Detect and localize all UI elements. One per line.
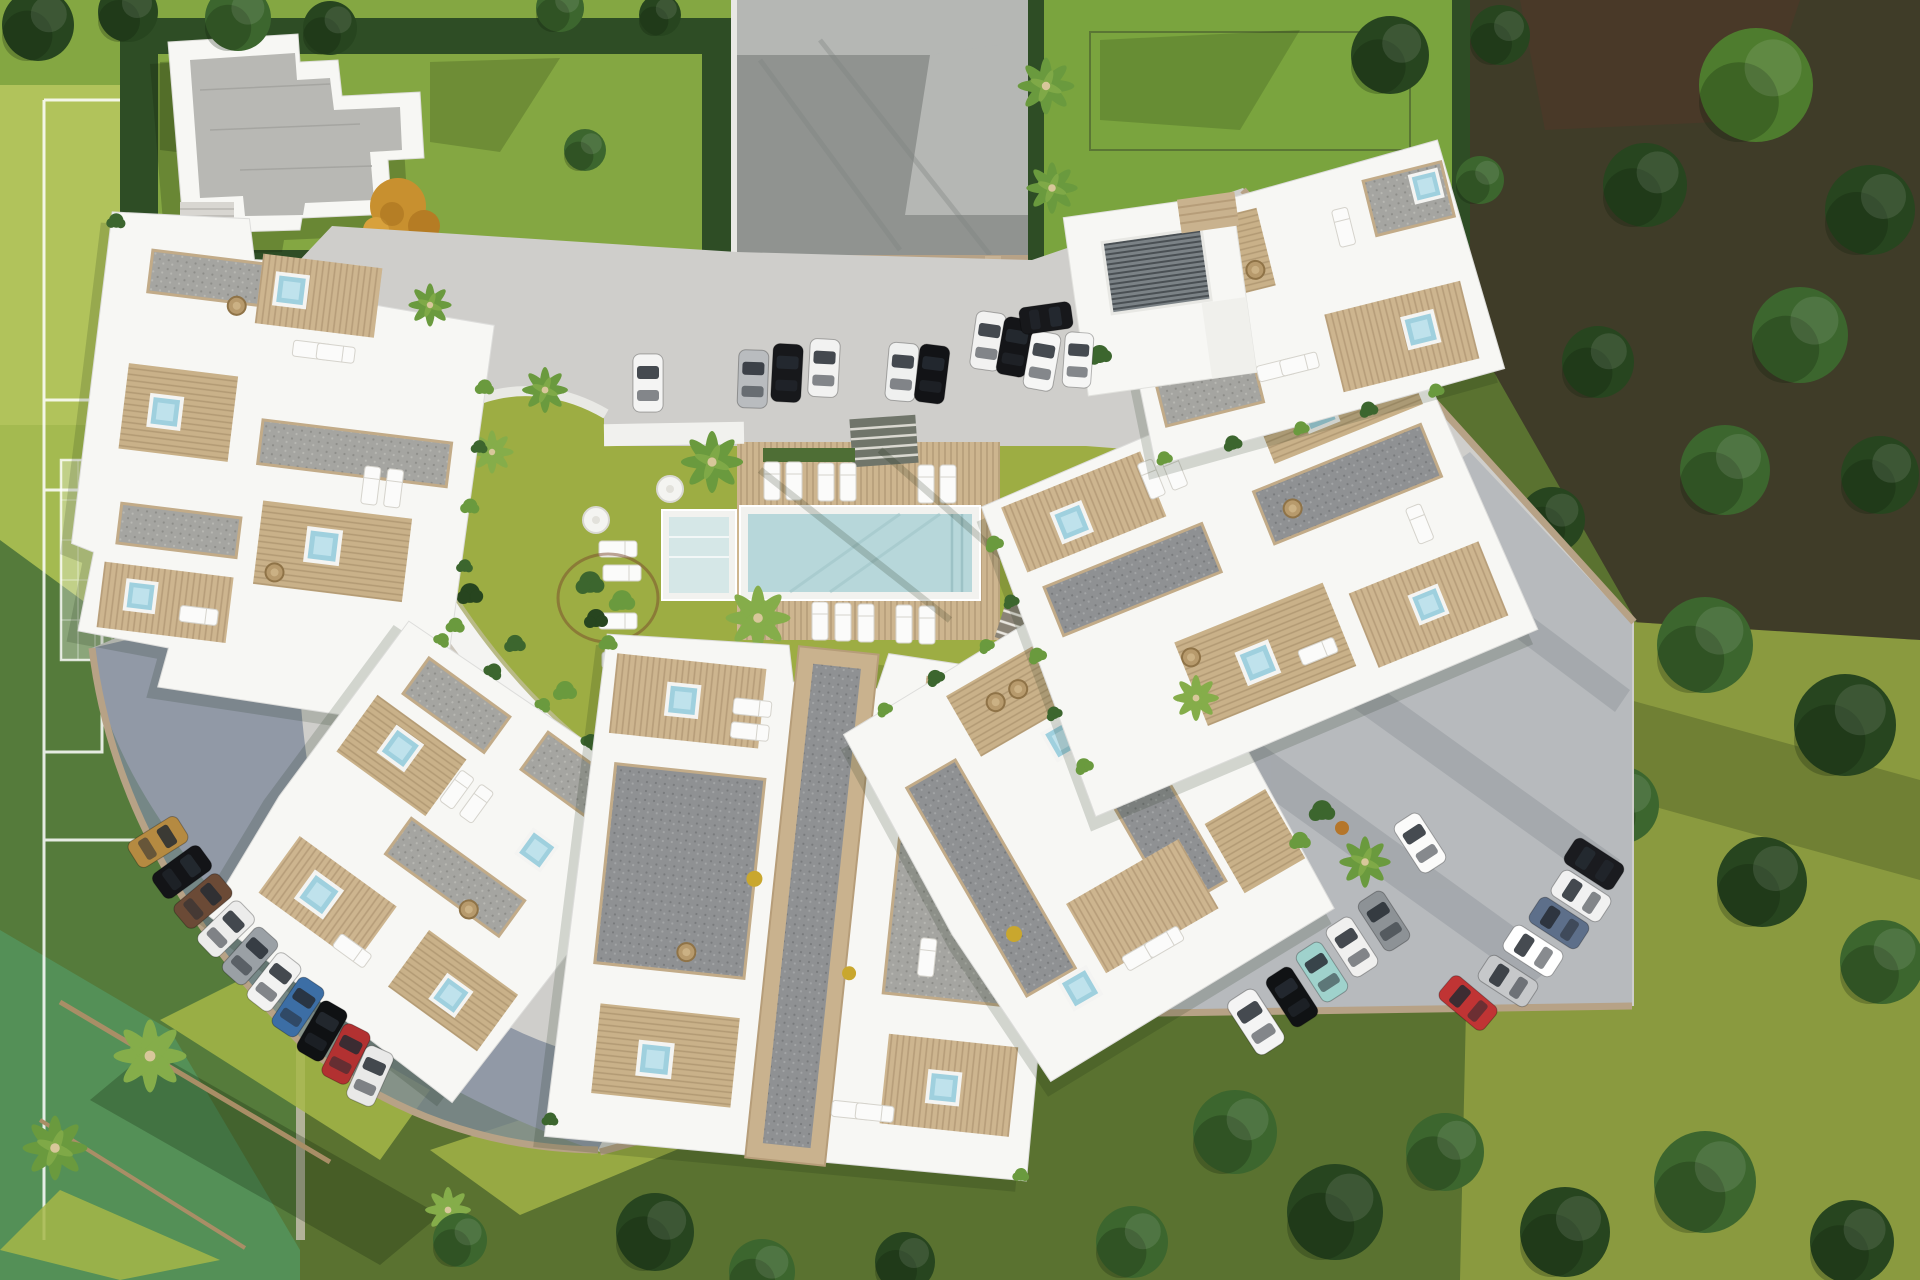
tree [1794, 674, 1896, 776]
tree [1752, 287, 1848, 383]
tree [1287, 1164, 1383, 1260]
palm-tree [1026, 162, 1077, 213]
wicker-chair [676, 942, 696, 962]
palm-tree [726, 586, 791, 651]
aerial-render-stage [0, 0, 1920, 1280]
roof-lounger [733, 698, 772, 718]
tree [303, 1, 357, 55]
tree [1717, 837, 1807, 927]
jacuzzi [1402, 311, 1439, 348]
pool-stairs [849, 415, 918, 467]
wicker-chair [264, 562, 284, 582]
tree [1096, 1206, 1168, 1278]
tree [616, 1193, 694, 1271]
aerial-render [0, 0, 1920, 1280]
palm-tree [114, 1020, 187, 1093]
round-table [583, 507, 609, 533]
wicker-chair [227, 296, 247, 316]
tree [1406, 1113, 1484, 1191]
tree [1825, 165, 1915, 255]
tree [1680, 425, 1770, 515]
tree [1603, 143, 1687, 227]
tree [1470, 5, 1530, 65]
tree [1699, 28, 1813, 142]
palm-tree [681, 431, 743, 493]
jacuzzi [927, 1071, 960, 1104]
tree [1657, 597, 1753, 693]
kids-pool-water [669, 517, 729, 593]
palm-tree [1018, 58, 1075, 115]
tree [1351, 16, 1429, 94]
car [1062, 332, 1094, 389]
car [633, 354, 663, 412]
palm-tree [1173, 675, 1219, 721]
car [808, 338, 841, 397]
roof-lounger [730, 722, 769, 742]
palm-tree [408, 283, 451, 326]
tree [1456, 156, 1504, 204]
tree [1654, 1131, 1756, 1233]
tree [1520, 1187, 1610, 1277]
tree [1562, 326, 1634, 398]
palm-tree [522, 367, 568, 413]
entrance-pavilion [1063, 192, 1260, 396]
tree [433, 1213, 487, 1267]
round-table [657, 476, 683, 502]
roof-lounger [855, 1103, 894, 1123]
palm-tree [23, 1116, 88, 1181]
palm-tree [1339, 836, 1390, 887]
jacuzzi [125, 580, 157, 612]
jacuzzi [666, 684, 699, 717]
jacuzzi [637, 1042, 672, 1077]
car [737, 349, 769, 408]
jacuzzi [274, 273, 308, 307]
driveway-west-wall [731, 0, 737, 260]
villa-small-tree [564, 129, 606, 171]
deck-planter [763, 448, 855, 462]
retaining-wall [604, 422, 744, 446]
jacuzzi [148, 395, 182, 429]
pavilion-louver-roof [1102, 229, 1211, 314]
tree [1193, 1090, 1277, 1174]
neighbor-driveway [731, 0, 1035, 285]
jacuzzi [305, 528, 341, 564]
car [771, 343, 804, 402]
tree [1841, 436, 1919, 514]
roof-lounger [917, 938, 937, 977]
jacuzzi [1410, 170, 1443, 203]
kids-pool [662, 510, 736, 600]
car [914, 343, 951, 404]
